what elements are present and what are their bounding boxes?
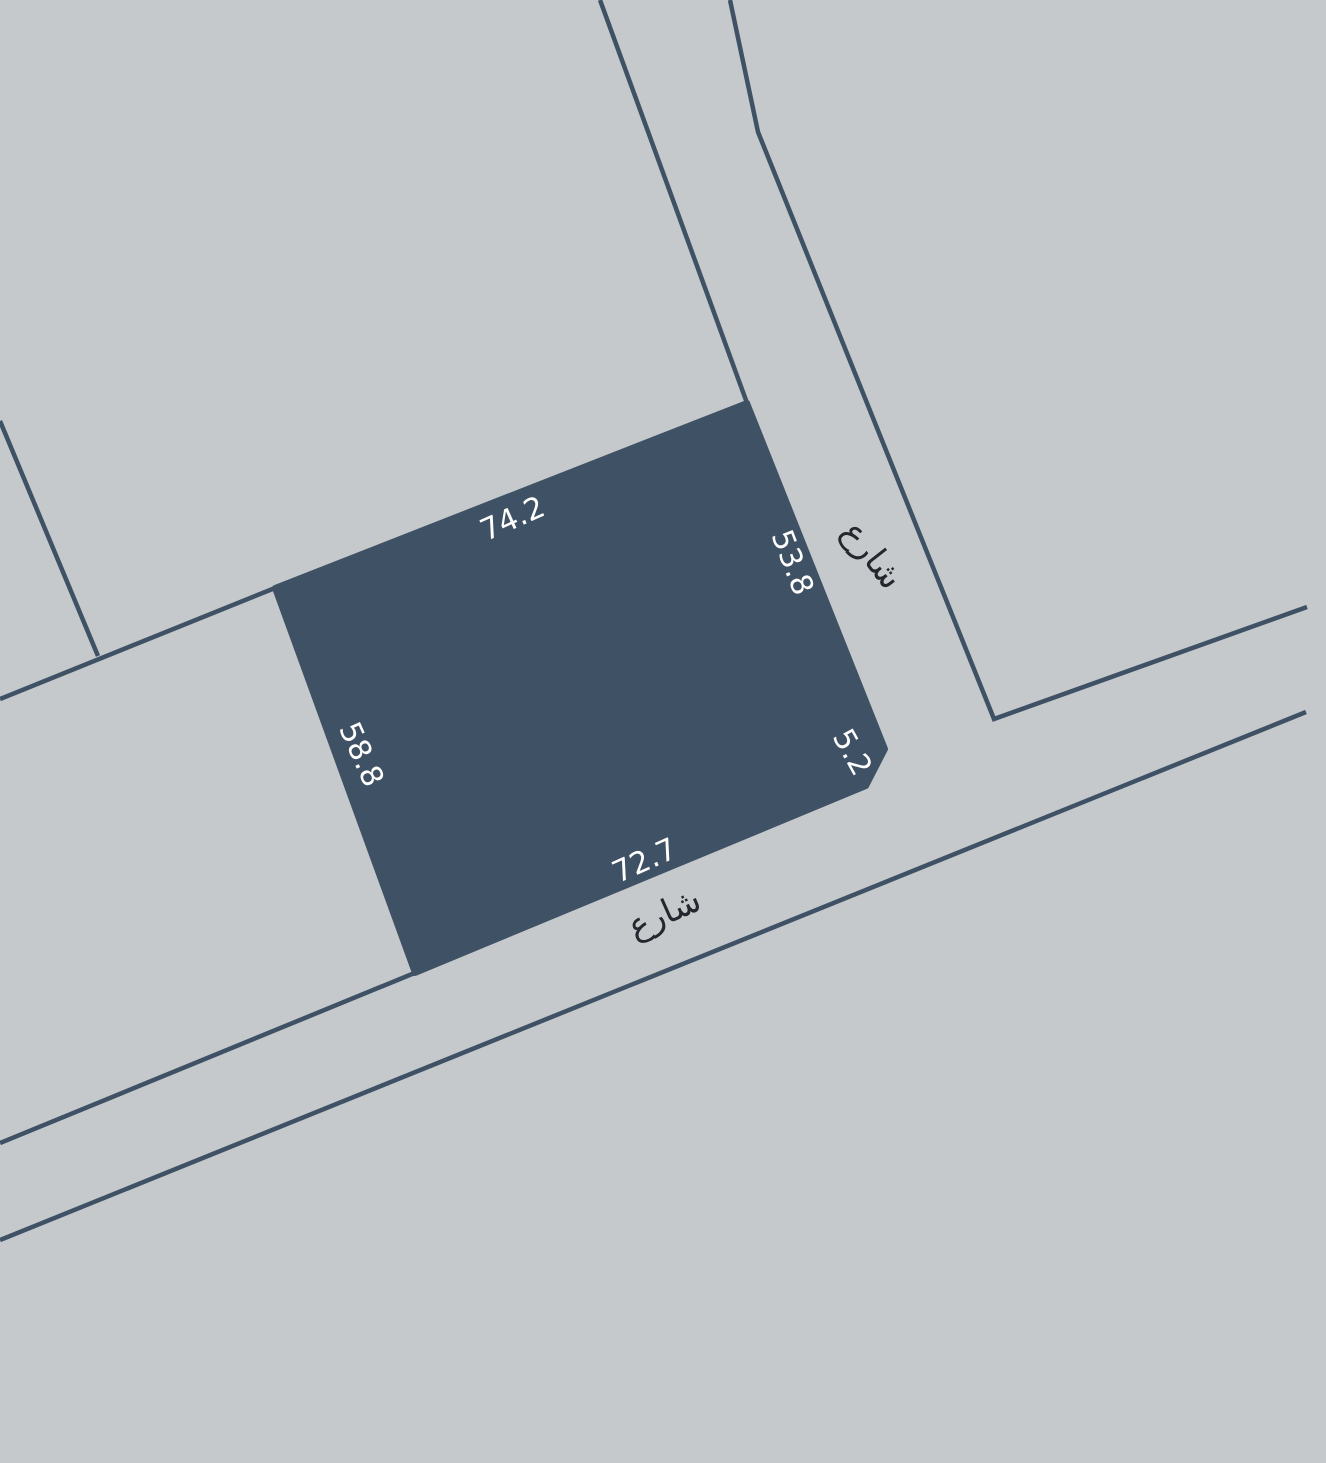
parcel-polygon[interactable]: [275, 403, 885, 973]
block-boundary-west: [0, 588, 275, 699]
map-canvas[interactable]: 74.253.85.272.758.8شارعشارع: [0, 0, 1326, 1463]
map-viewport[interactable]: 74.253.85.272.758.8شارعشارع: [0, 0, 1326, 1463]
block-inner-boundary: [0, 421, 98, 656]
street-label-south: شارع: [622, 880, 707, 947]
street-edge-vertical-west: [600, 0, 747, 403]
street-edge-horizontal-north-west: [0, 972, 417, 1143]
street-label-east: شارع: [833, 513, 911, 597]
